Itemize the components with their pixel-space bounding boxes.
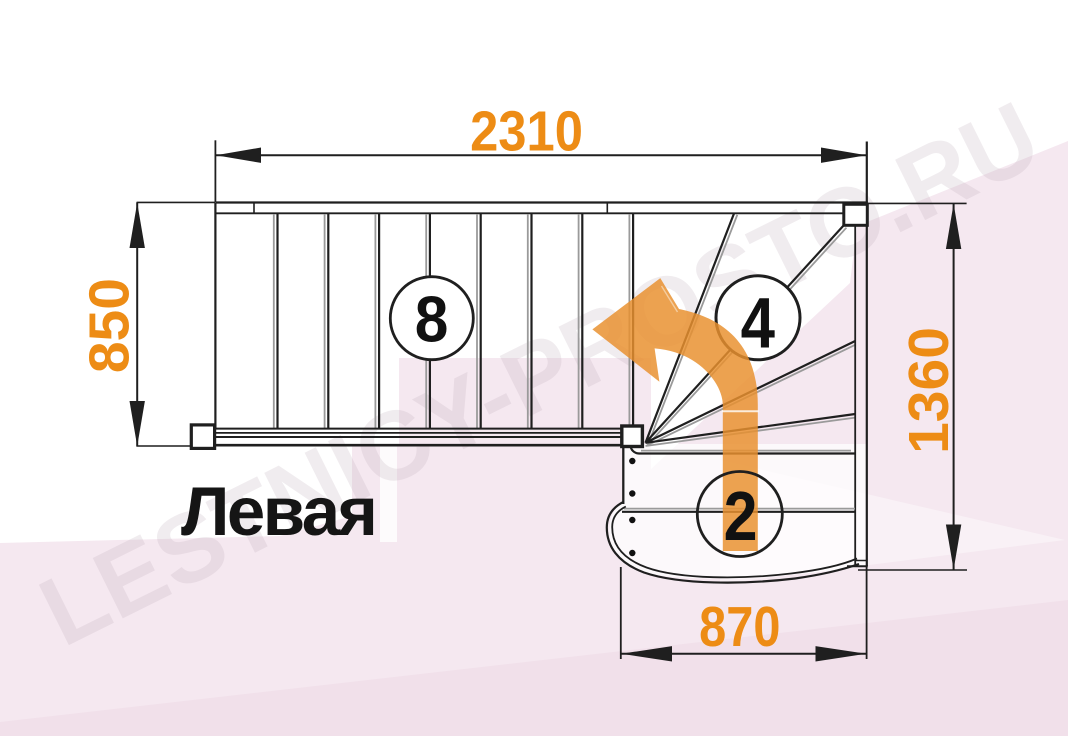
svg-text:2310: 2310 [470, 100, 583, 163]
svg-text:2: 2 [724, 477, 758, 555]
svg-text:1360: 1360 [897, 327, 961, 454]
svg-text:870: 870 [699, 595, 780, 658]
svg-text:850: 850 [78, 278, 142, 373]
svg-text:4: 4 [741, 285, 775, 364]
svg-text:8: 8 [415, 284, 449, 356]
svg-text:Левая: Левая [181, 473, 375, 550]
